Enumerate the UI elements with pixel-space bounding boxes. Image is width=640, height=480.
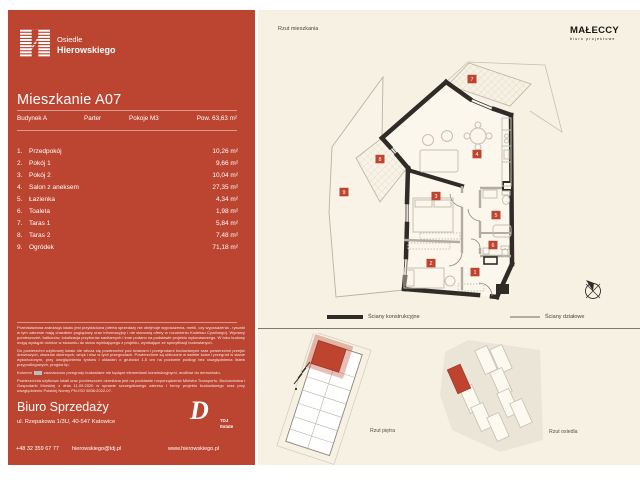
room-list: 1.Przedpokój10,26 m²2.Pokój 19,66 m²3.Po… <box>17 148 238 256</box>
room-marker-number: 8 <box>379 157 382 163</box>
room-row: 4.Salon z aneksem27,35 m² <box>17 184 238 196</box>
room-marker-number: 1 <box>474 270 477 276</box>
room-row: 1.Przedpokój10,26 m² <box>17 148 238 160</box>
total-area-label: Pow. 63,63 m² <box>197 115 237 122</box>
osiedle-hierowskiego-logo-icon <box>20 27 50 60</box>
apartment-info-panel: Osiedle Hierowskiego Mieszkanie A07 Budy… <box>8 10 255 465</box>
tdj-estate-logo-text: TDJ Estate <box>220 418 233 429</box>
offer-card: Osiedle Hierowskiego Mieszkanie A07 Budy… <box>0 0 640 480</box>
tdj-estate-logo: D TDJ Estate <box>190 398 240 424</box>
sales-office-title: Biuro Sprzedaży <box>17 400 109 414</box>
legal-disclaimer: Przedstawiona aranżacja lokalu jest przy… <box>17 326 245 397</box>
website-link[interactable]: www.hierowskiego.pl <box>168 446 219 452</box>
room-row: 9.Ogródek71,18 m² <box>17 244 238 256</box>
legend-label: Ściany działowe <box>545 314 584 320</box>
divider <box>17 130 237 131</box>
room-marker-number: 4 <box>476 152 479 158</box>
partition-wall-swatch <box>510 316 540 319</box>
logo-line1: Osiedle <box>57 36 116 45</box>
room-row: 3.Pokój 210,04 m² <box>17 172 238 184</box>
garden-outline <box>329 77 407 297</box>
divider <box>17 322 237 323</box>
apartment-meta-row: Budynek A Parter Pokoje M3 Pow. 63,63 m² <box>17 115 237 125</box>
architect-logo: MAŁECCY biuro projektowe <box>570 25 619 41</box>
structural-wall-swatch <box>327 315 363 319</box>
estate-mini-label: Rzut osiedla <box>549 429 578 435</box>
room-row: 6.Toaleta1,98 m² <box>17 208 238 220</box>
sales-office-address: ul. Rzepakowa 1/3U, 40-547 Katowice <box>17 419 115 425</box>
logo-line2: Hierowskiego <box>57 45 116 55</box>
room-marker-number: 7 <box>471 77 474 83</box>
legend-structural-walls: Ściany konstrukcyjne <box>327 313 420 321</box>
phone-link[interactable]: +48 32 359 67 77 <box>16 446 59 452</box>
divider <box>258 328 640 329</box>
architect-subtitle: biuro projektowe <box>570 37 619 41</box>
room-marker-number: 5 <box>495 213 498 219</box>
room-marker-number: 2 <box>430 261 433 267</box>
room-row: 8.Taras 27,48 m² <box>17 232 238 244</box>
disclaimer-paragraph: Do powierzchni użytkowej lokalu nie wlic… <box>17 349 245 369</box>
mini-plans <box>258 333 640 465</box>
legend-partition-walls: Ściany działowe <box>510 313 584 321</box>
floor-mini-plan <box>277 333 371 464</box>
apartment-title: Mieszkanie A07 <box>17 92 121 108</box>
rooms-type-label: Pokoje M3 <box>129 115 159 122</box>
plan-section-label: Rzut mieszkania <box>278 26 318 32</box>
room-row: 7.Taras 15,84 m² <box>17 220 238 232</box>
legend-label: Ściany konstrukcyjne <box>368 314 420 320</box>
email-link[interactable]: hierowskiego@tdj.pl <box>72 446 121 452</box>
room-marker-number: 3 <box>435 194 438 200</box>
floor-plan-panel: Rzut mieszkania MAŁECCY biuro projektowe <box>258 10 640 465</box>
room-marker-number: 9 <box>343 190 346 196</box>
demolition-color-swatch <box>34 371 42 375</box>
divider <box>17 110 237 111</box>
floor-mini-label: Rzut piętra <box>370 428 395 434</box>
disclaimer-paragraph: Koloremzaznaczono przegrody budowlane ni… <box>17 371 245 376</box>
estate-mini-plan <box>440 340 543 452</box>
disclaimer-paragraph: Przedstawiona aranżacja lokalu jest przy… <box>17 326 245 346</box>
floor-label: Parter <box>84 115 101 122</box>
apartment-floor-plan: 123456789 <box>258 45 640 305</box>
room-row: 2.Pokój 19,66 m² <box>17 160 238 172</box>
contact-row: +48 32 359 67 77 hierowskiego@tdj.pl www… <box>8 446 255 456</box>
building-label: Budynek A <box>17 115 47 122</box>
disclaimer-paragraph: Powierzchnia użytkowa lokali oraz pomies… <box>17 379 245 394</box>
room-row: 5.Łazienka4,34 m² <box>17 196 238 208</box>
room-marker-number: 6 <box>492 243 495 249</box>
logo-text: Osiedle Hierowskiego <box>57 36 116 55</box>
architect-name: MAŁECCY <box>570 25 619 36</box>
compass-icon <box>586 280 601 299</box>
